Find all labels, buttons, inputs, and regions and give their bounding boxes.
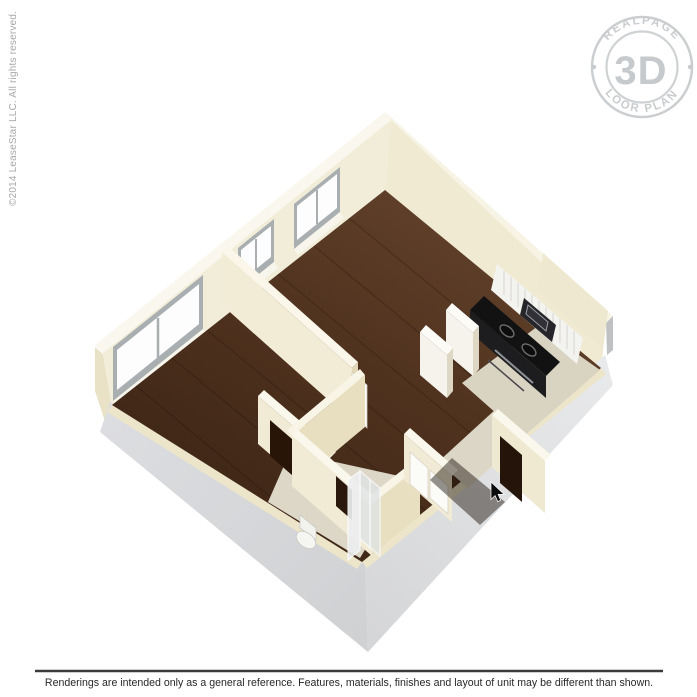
realpage-3d-watermark: REALPAGE FLOOR PLANS 3D 3D [0, 0, 692, 117]
floor-plan-page: REALPAGE FLOOR PLANS 3D 3D ©2014 LeaseSt… [0, 0, 697, 697]
disclaimer-text: Renderings are intended only as a genera… [45, 677, 653, 689]
watermark-arc-bottom: FLOOR PLANS [0, 0, 681, 115]
watermark-3d-text: 3D [614, 49, 667, 93]
watermark-arc-top: REALPAGE [601, 15, 683, 43]
floor-plan-render: REALPAGE FLOOR PLANS 3D 3D ©2014 LeaseSt… [0, 0, 697, 697]
copyright-text: ©2014 LeaseStar LLC. All rights reserved… [8, 11, 19, 206]
